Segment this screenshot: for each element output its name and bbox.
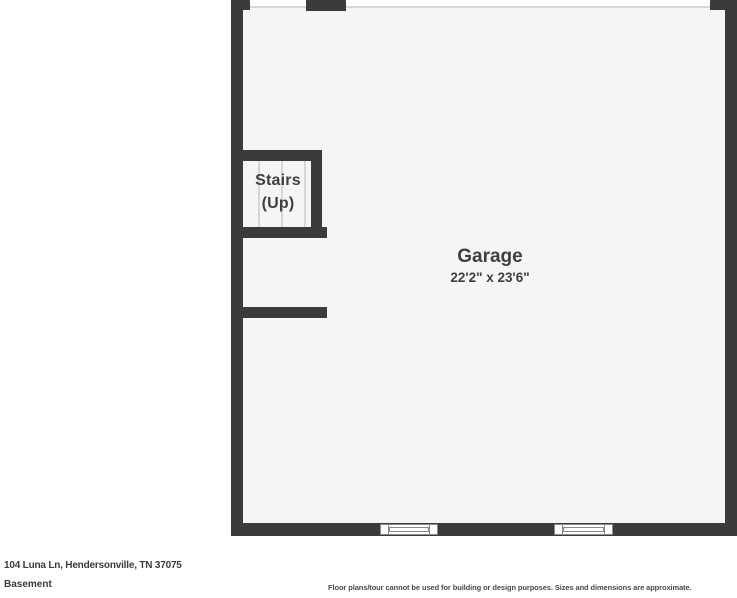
room-label: Garage 22'2" x 23'6" bbox=[390, 245, 590, 287]
footer-disclaimer: Floor plans/tour cannot be used for buil… bbox=[328, 583, 692, 592]
footer-address: 104 Luna Ln, Hendersonville, TN 37075 bbox=[4, 560, 182, 571]
window-end-cap bbox=[604, 525, 612, 534]
window-symbol-right bbox=[554, 524, 613, 535]
room-name: Garage bbox=[390, 245, 590, 269]
wall-stairs-top bbox=[231, 150, 322, 161]
floorplan-canvas: Stairs (Up) Garage 22'2" x 23'6" 104 Lun… bbox=[0, 0, 737, 598]
stairs-label-line1: Stairs bbox=[240, 169, 316, 192]
wall-right bbox=[725, 0, 737, 536]
wall-top-segment bbox=[306, 0, 346, 11]
window-end-cap bbox=[429, 525, 437, 534]
room-dimensions: 22'2" x 23'6" bbox=[390, 269, 590, 287]
wall-bottom bbox=[231, 523, 737, 536]
wall-interior-stub bbox=[231, 307, 327, 318]
wall-left bbox=[231, 0, 243, 536]
window-symbol-left bbox=[380, 524, 438, 535]
stairs-label-line2: (Up) bbox=[240, 192, 316, 215]
wall-stairs-bottom bbox=[231, 227, 327, 238]
stairs-label: Stairs (Up) bbox=[240, 169, 316, 215]
window-end-cap bbox=[555, 525, 563, 534]
window-end-cap bbox=[381, 525, 389, 534]
window-pane bbox=[563, 527, 604, 532]
footer-level: Basement bbox=[4, 579, 52, 590]
window-pane bbox=[389, 527, 429, 532]
